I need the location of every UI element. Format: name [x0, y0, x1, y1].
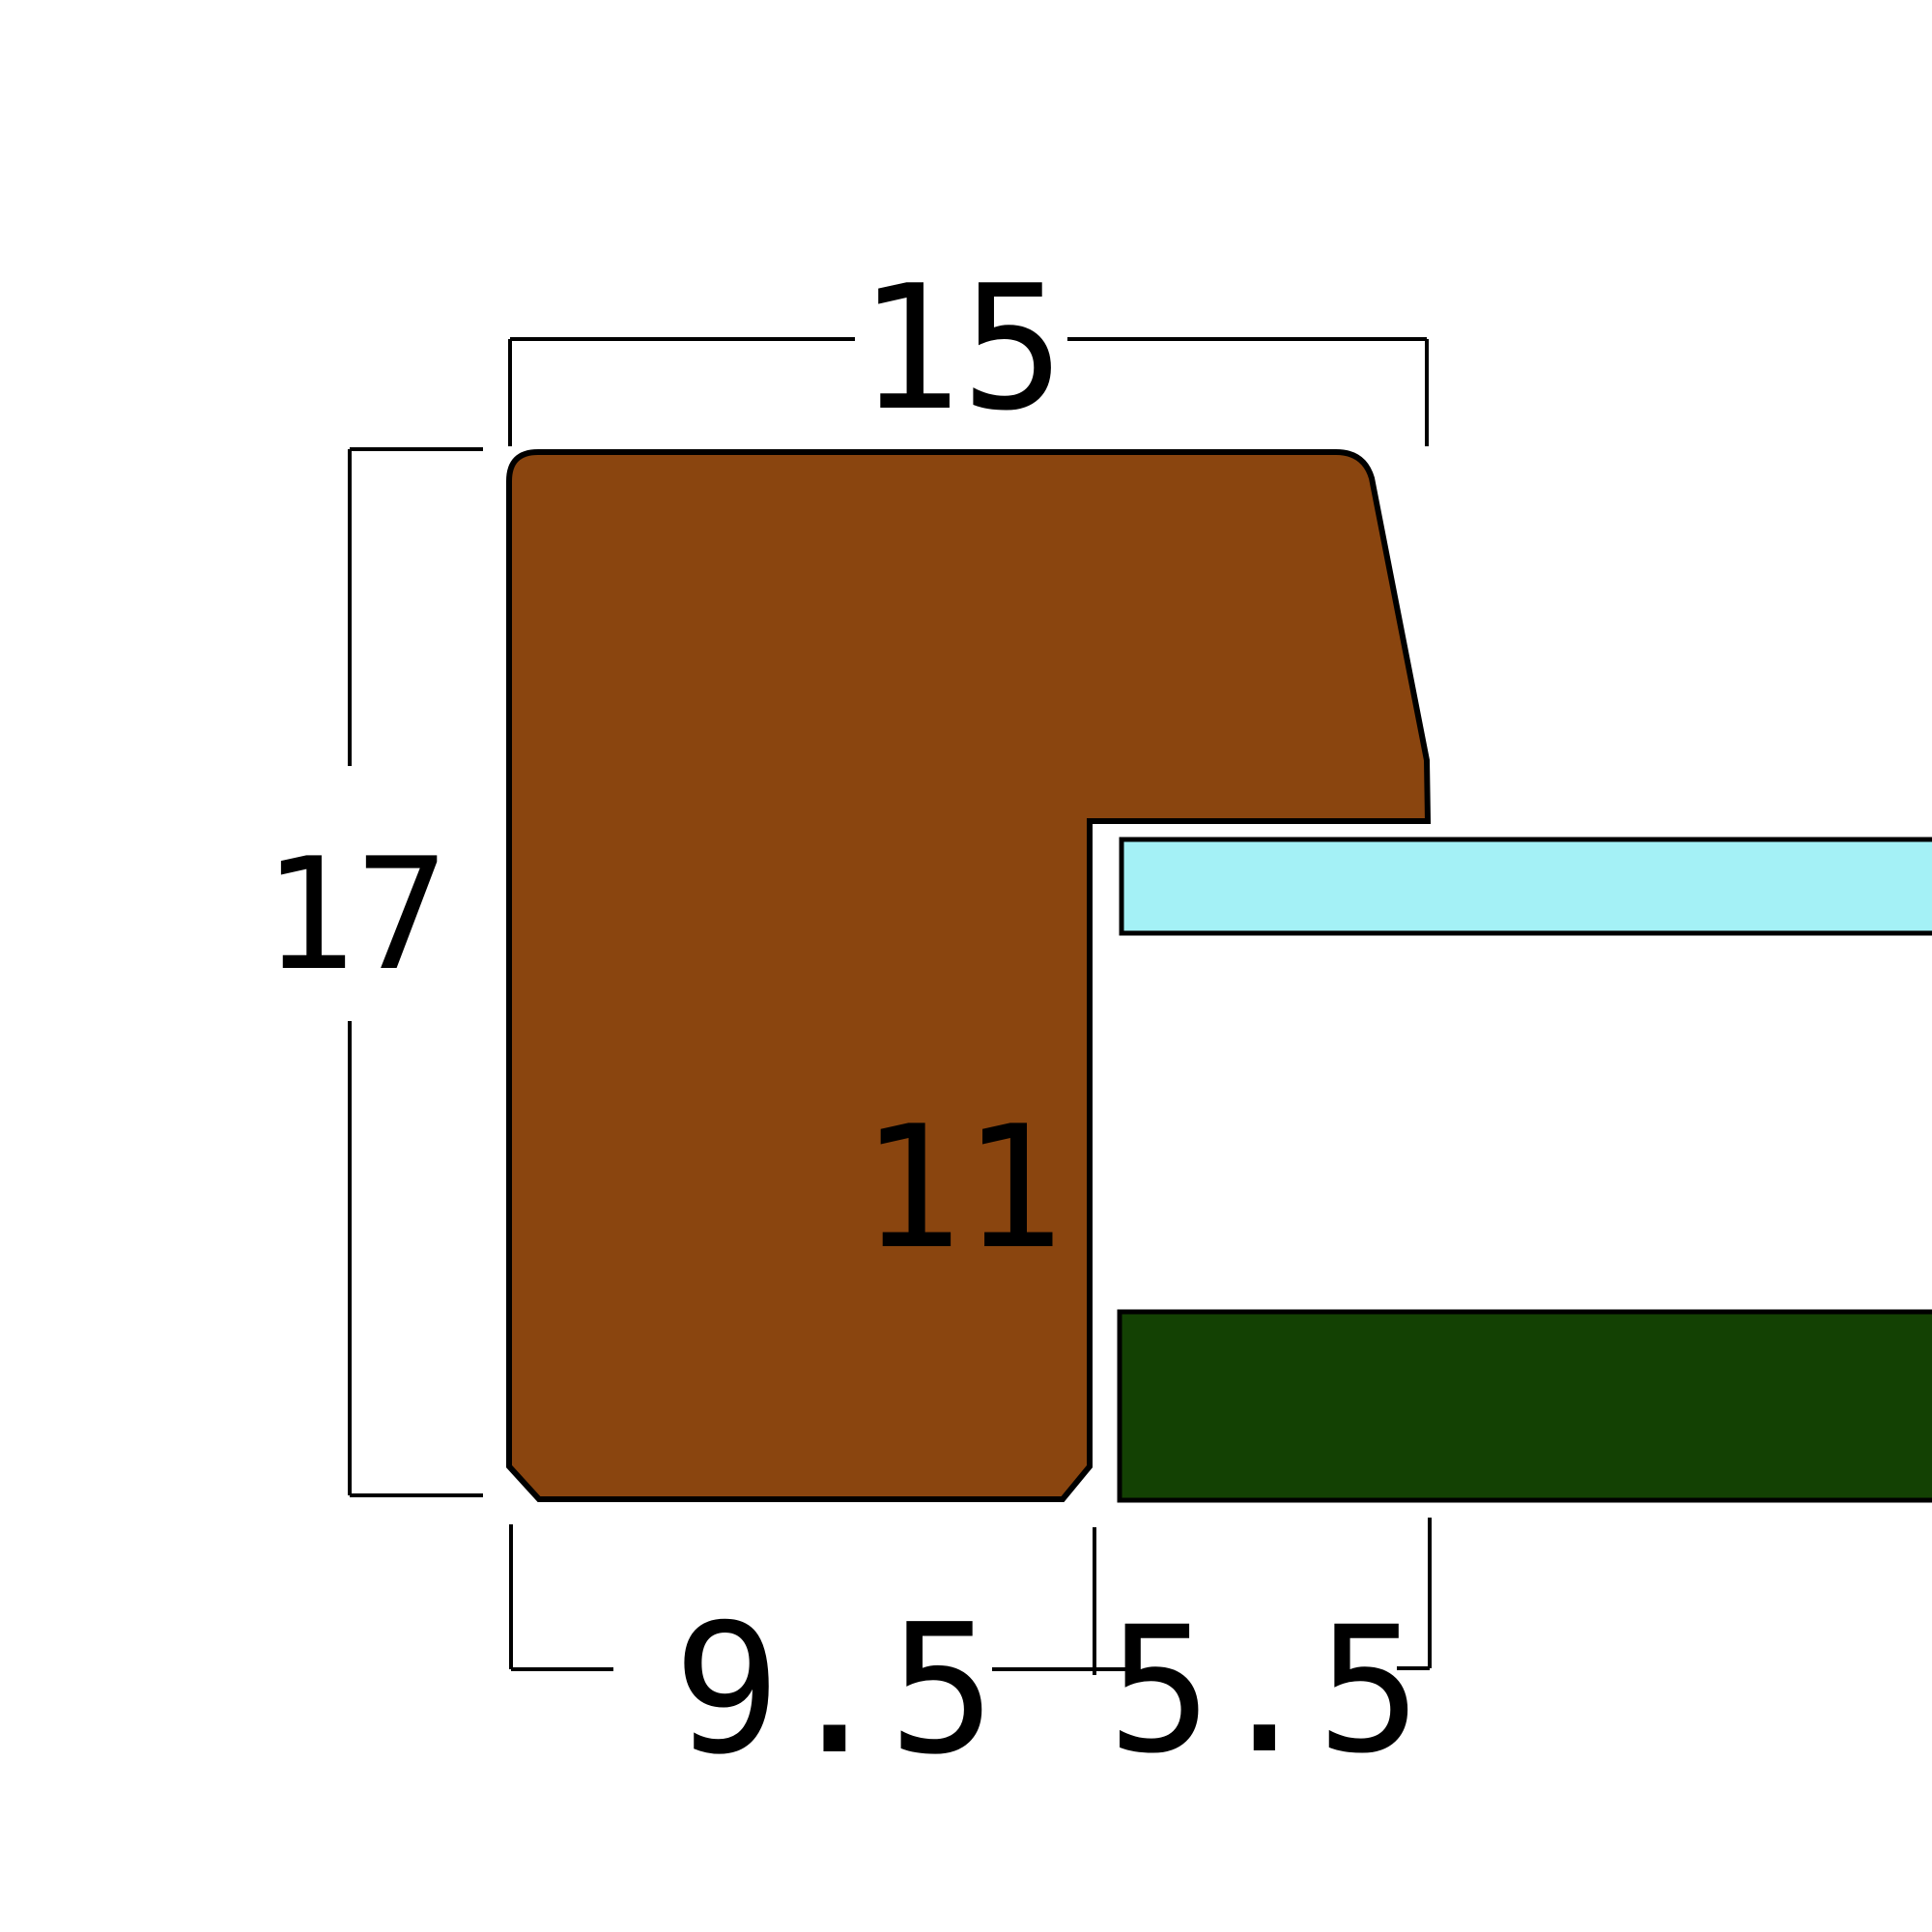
backing-board: [1120, 1312, 1932, 1500]
dimension-label-bottom-left-width: 9.5: [673, 1585, 996, 1794]
dimension-label-top-width: 15: [858, 248, 1065, 448]
dimension-label-left-height: 17: [263, 824, 449, 1005]
diagram-canvas: 15 17 11 9.5 5.5: [0, 0, 1932, 1932]
dimension-label-inner-height: 11: [861, 1091, 1065, 1287]
cross-section-diagram: 15 17 11 9.5 5.5: [0, 0, 1932, 1932]
dimension-label-bottom-right-width: 5.5: [1107, 1590, 1421, 1792]
glass-panel: [1122, 839, 1932, 933]
